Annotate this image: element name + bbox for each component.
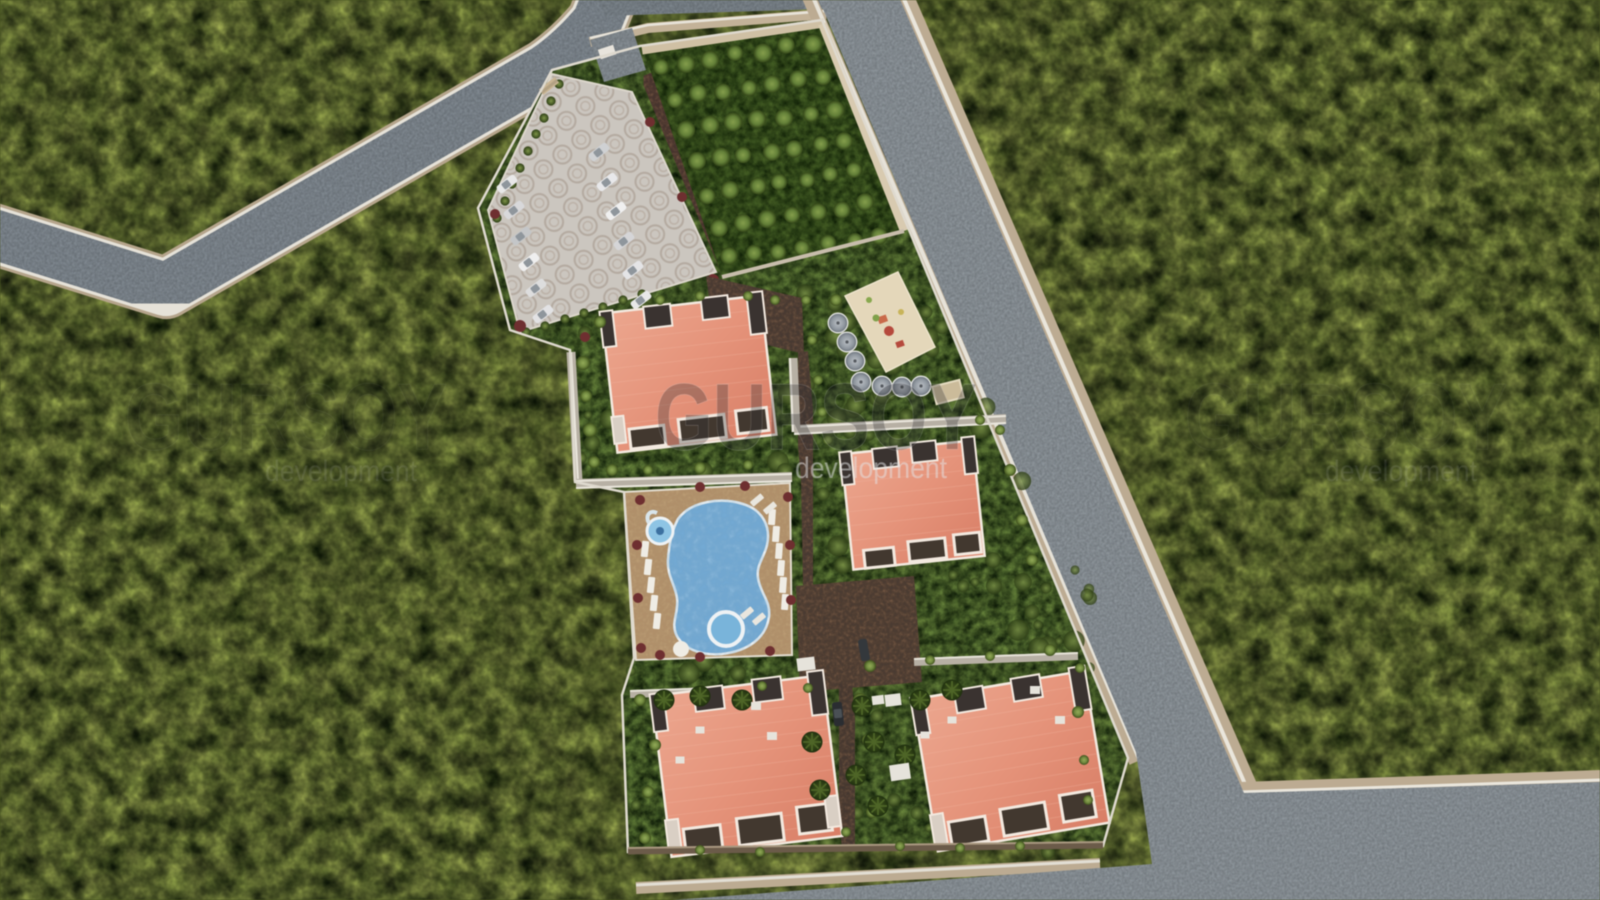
svg-text:development: development: [265, 455, 418, 488]
svg-text:development: development: [795, 452, 948, 485]
svg-text:GURSOY: GURSOY: [125, 364, 447, 469]
svg-text:GURSOY: GURSOY: [1185, 364, 1507, 469]
svg-text:development: development: [1325, 455, 1478, 488]
